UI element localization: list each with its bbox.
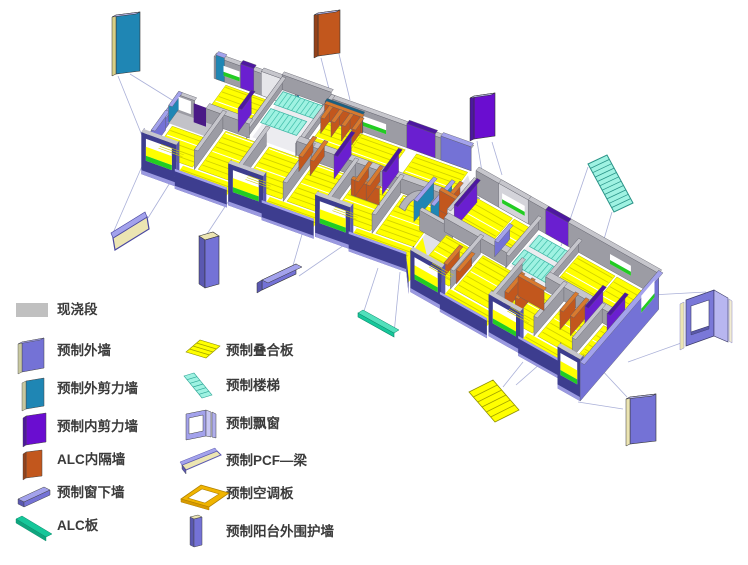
svg-text:预制窗下墙: 预制窗下墙 <box>57 484 125 500</box>
svg-text:预制空调板: 预制空调板 <box>226 485 294 501</box>
svg-text:预制叠合板: 预制叠合板 <box>226 342 294 358</box>
svg-text:ALC板: ALC板 <box>57 517 99 533</box>
svg-text:预制内剪力墙: 预制内剪力墙 <box>57 418 138 434</box>
svg-text:预制PCF—梁: 预制PCF—梁 <box>226 452 307 468</box>
svg-text:预制外墙: 预制外墙 <box>57 342 111 358</box>
svg-text:预制阳台外围护墙: 预制阳台外围护墙 <box>226 523 334 539</box>
svg-text:现浇段: 现浇段 <box>57 301 98 317</box>
svg-text:预制飘窗: 预制飘窗 <box>226 415 280 431</box>
svg-text:预制楼梯: 预制楼梯 <box>226 377 280 393</box>
svg-text:ALC内隔墙: ALC内隔墙 <box>57 451 126 467</box>
svg-text:预制外剪力墙: 预制外剪力墙 <box>57 380 138 396</box>
